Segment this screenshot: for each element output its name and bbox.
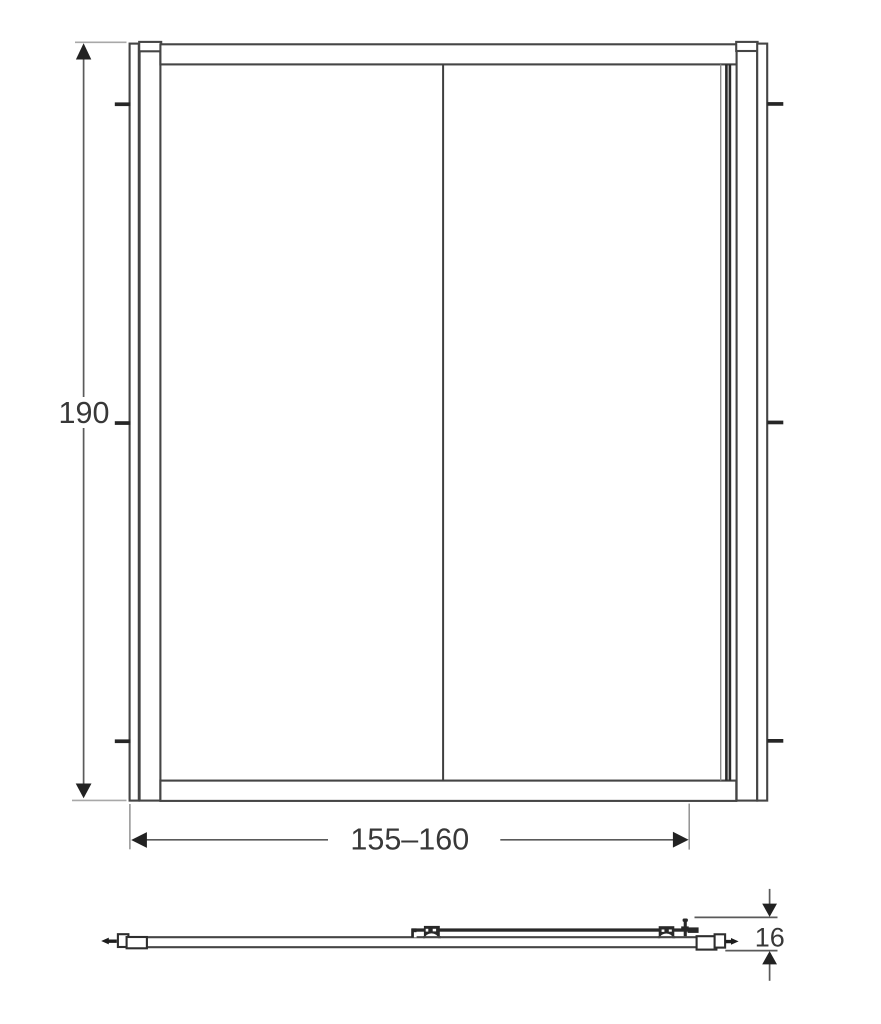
svg-text:16: 16 bbox=[755, 923, 785, 953]
svg-text:155–160: 155–160 bbox=[350, 823, 469, 857]
svg-text:190: 190 bbox=[59, 396, 110, 430]
